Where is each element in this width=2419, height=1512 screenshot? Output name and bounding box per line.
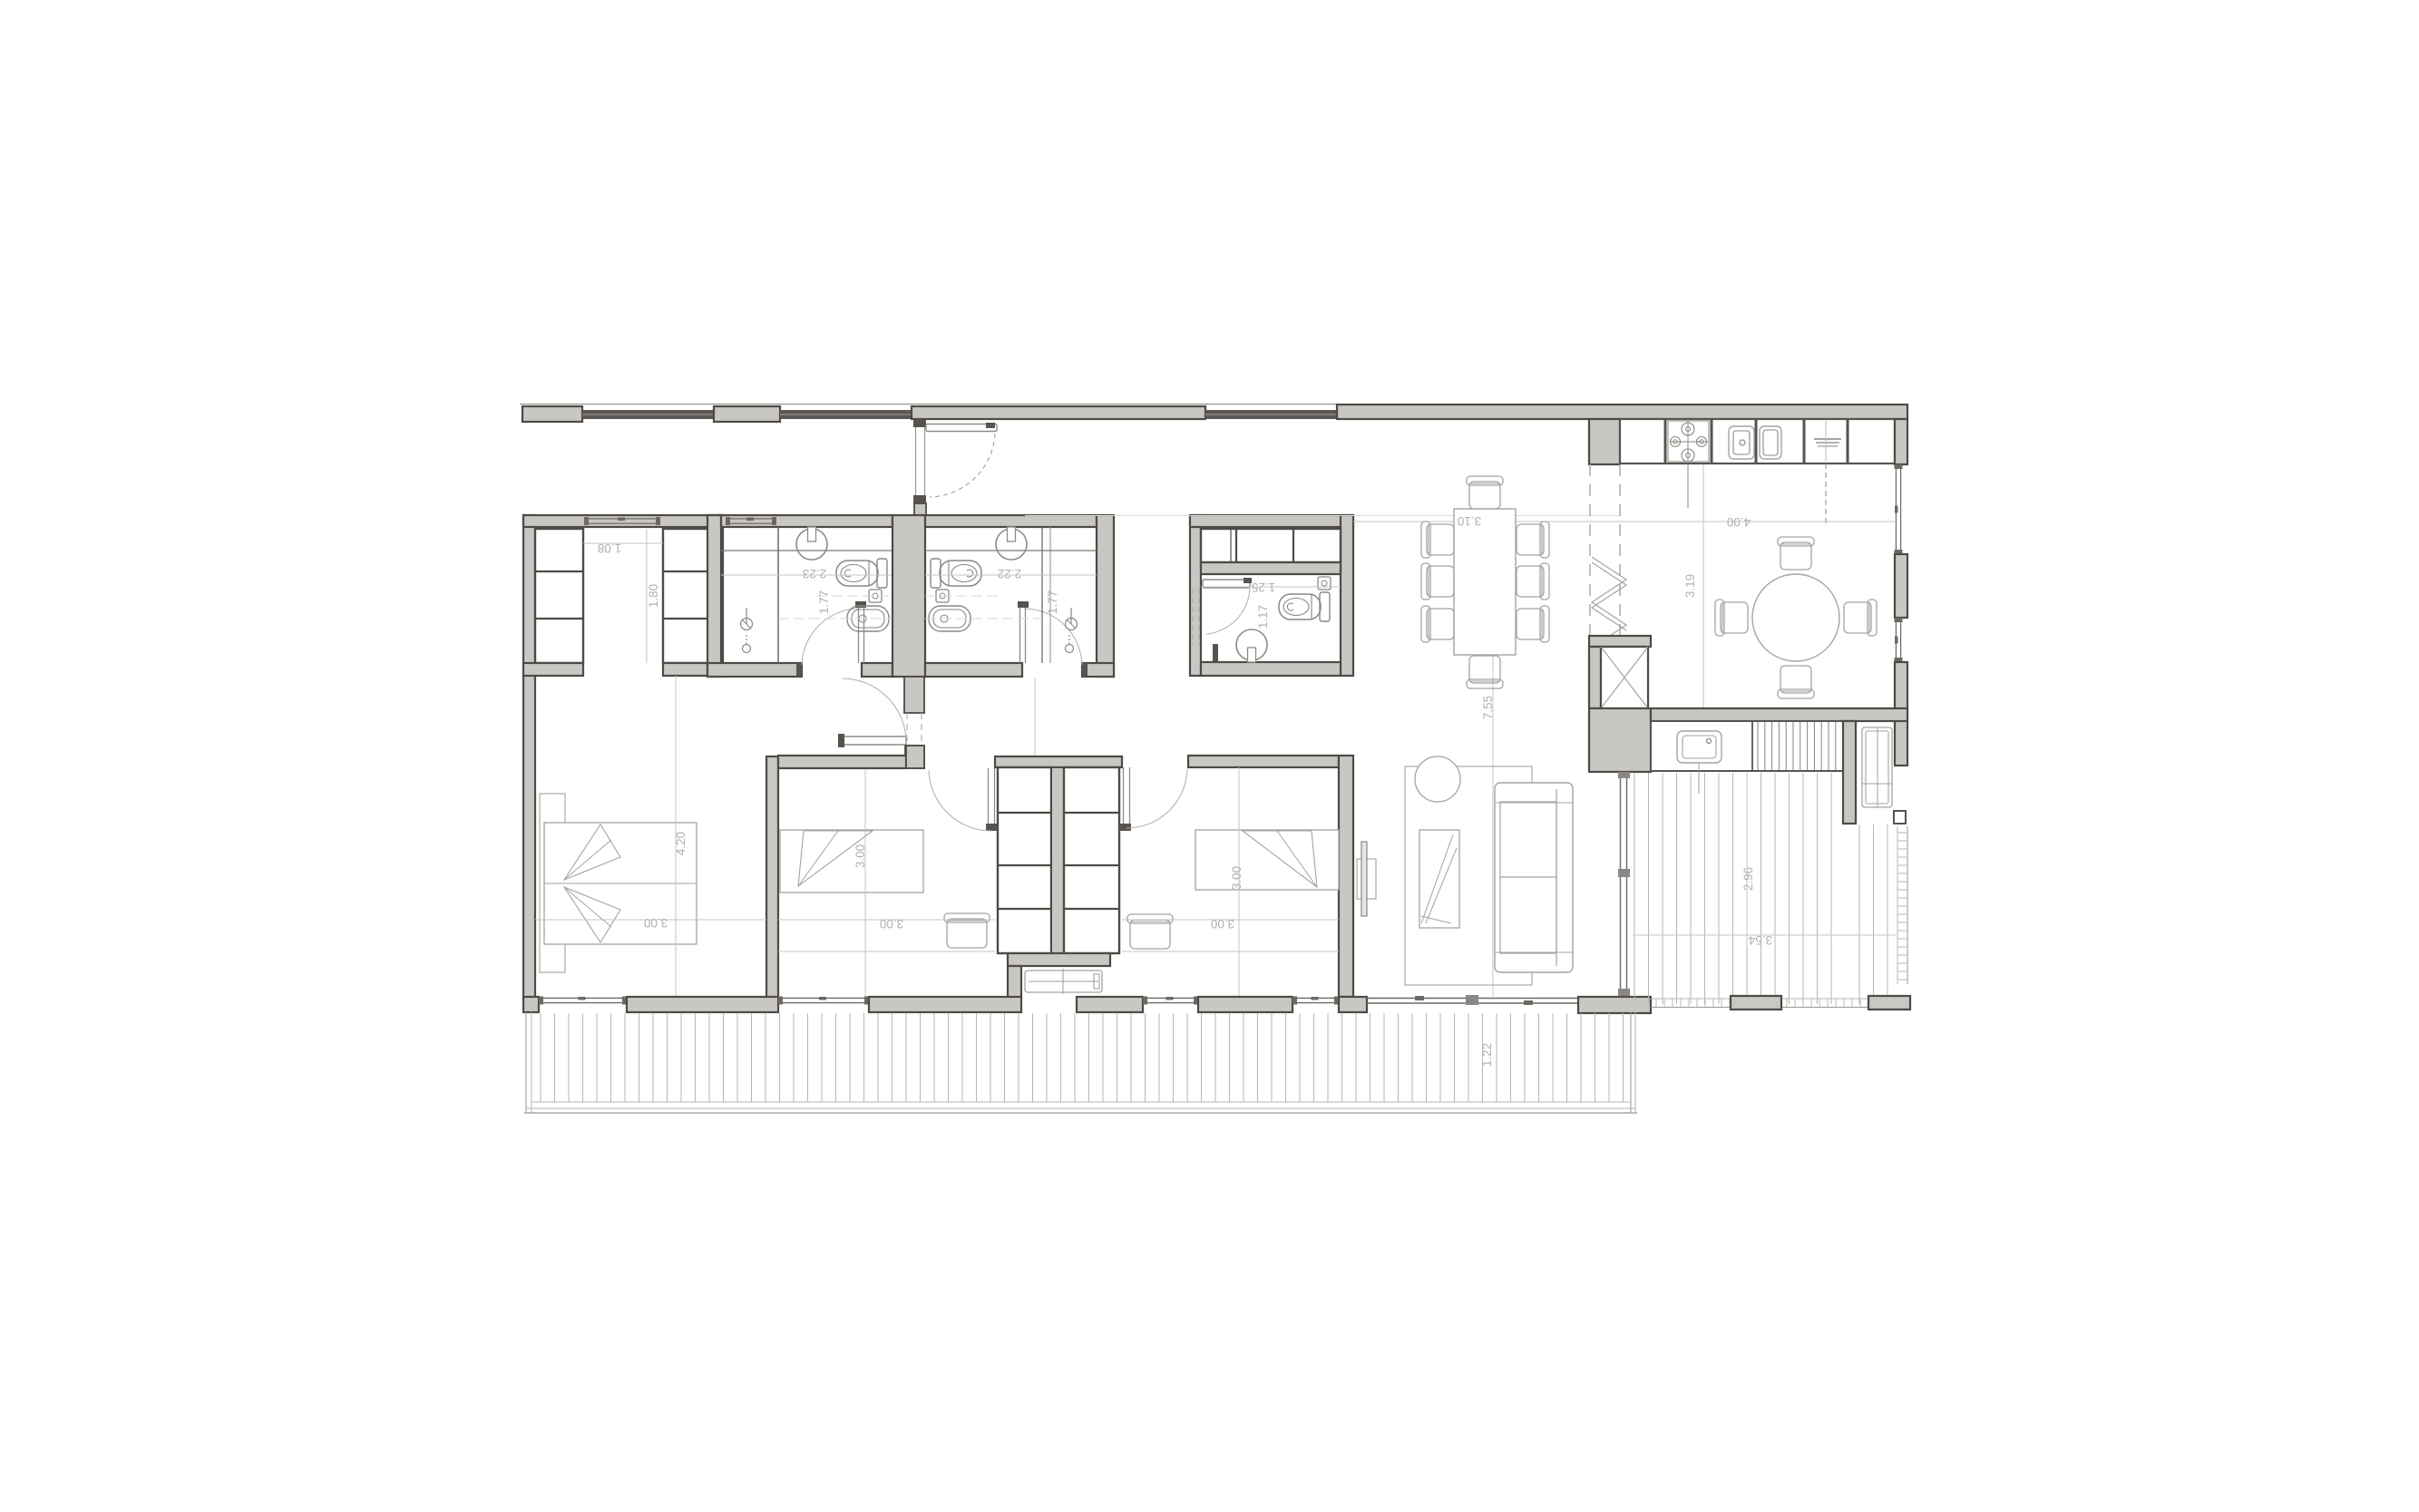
svg-text:2.22: 2.22	[998, 567, 1021, 580]
svg-text:1.77: 1.77	[817, 590, 831, 614]
svg-text:4.00: 4.00	[1727, 515, 1751, 529]
svg-text:3.00: 3.00	[853, 844, 867, 868]
svg-text:7.55: 7.55	[1481, 696, 1495, 719]
svg-text:3.00: 3.00	[644, 916, 668, 930]
svg-text:1.80: 1.80	[647, 584, 660, 608]
svg-text:1.17: 1.17	[1256, 605, 1270, 629]
svg-text:3.19: 3.19	[1683, 574, 1697, 598]
svg-text:3.00: 3.00	[880, 917, 903, 931]
svg-text:3.00: 3.00	[1211, 917, 1234, 931]
svg-text:1.22: 1.22	[1480, 1043, 1494, 1067]
svg-text:4.20: 4.20	[674, 832, 688, 855]
svg-text:3.54: 3.54	[1748, 933, 1772, 947]
svg-text:3.00: 3.00	[1230, 866, 1244, 890]
svg-text:3.10: 3.10	[1458, 514, 1481, 528]
svg-text:1.08: 1.08	[598, 541, 621, 555]
svg-text:2.96: 2.96	[1741, 867, 1755, 891]
svg-text:2.23: 2.23	[803, 567, 826, 580]
svg-text:1.77: 1.77	[1046, 590, 1059, 614]
svg-text:1.25: 1.25	[1252, 580, 1275, 594]
